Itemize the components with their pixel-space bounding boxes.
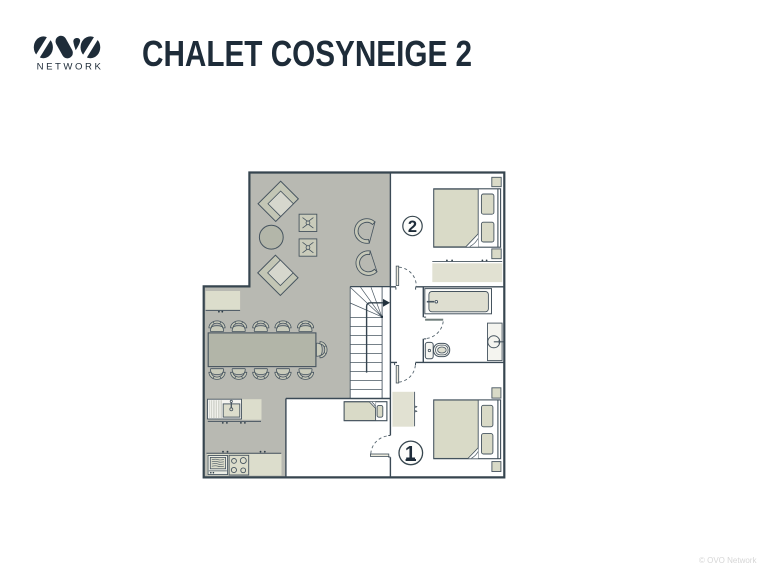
svg-text:1: 1 xyxy=(405,443,416,464)
svg-text:2: 2 xyxy=(408,218,417,236)
svg-text:NETWORK: NETWORK xyxy=(37,61,104,72)
